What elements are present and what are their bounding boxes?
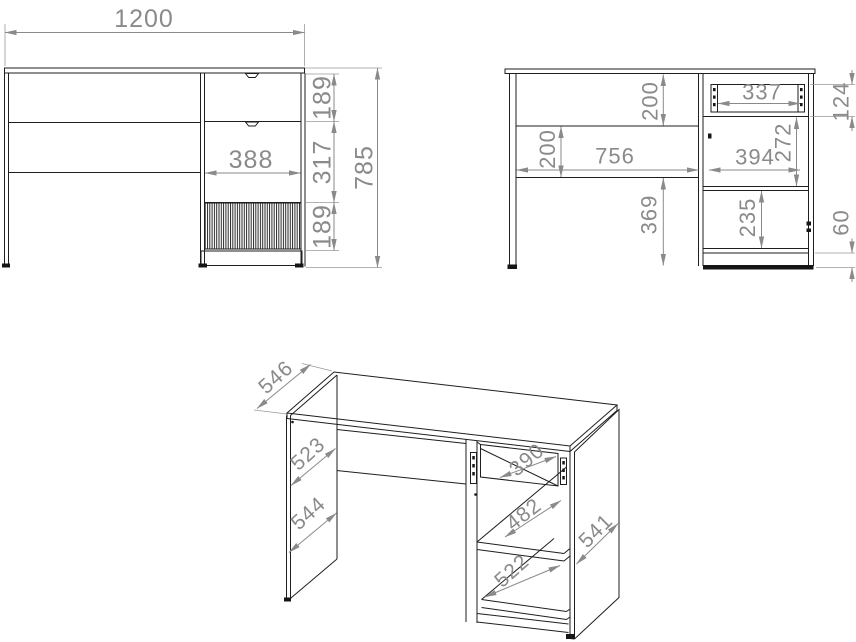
dim-drawer-front-width: 388 bbox=[229, 146, 274, 174]
dim-side-panel-upper-depth: 523 bbox=[286, 433, 330, 476]
perspective-view-furniture bbox=[284, 372, 619, 639]
dim-top-depth: 546 bbox=[254, 356, 298, 399]
dim-drawer-inner-width: 337 bbox=[742, 80, 782, 105]
dim-right-panel-depth: 541 bbox=[574, 509, 617, 552]
perspective-view: 546 523 544 390 482 522 541 bbox=[254, 356, 619, 639]
dim-middle-drawer-height: 317 bbox=[309, 140, 337, 185]
drawing-svg: 1200 388 189 317 189 785 bbox=[0, 0, 856, 642]
section-view: 200 200 756 369 337 394 272 235 bbox=[505, 69, 855, 282]
dim-drawer-depth: 390 bbox=[505, 439, 549, 481]
dim-top-drawer-height: 189 bbox=[309, 75, 337, 120]
fluted-drawer-front bbox=[205, 203, 302, 249]
dim-open-compartment-height: 272 bbox=[771, 123, 796, 163]
dim-drawer-box-height: 124 bbox=[829, 82, 854, 122]
drawer-handle-notch bbox=[246, 74, 259, 78]
dim-knee-space-width: 756 bbox=[595, 144, 635, 169]
front-view: 1200 388 189 317 189 785 bbox=[2, 5, 382, 268]
dim-front-width: 1200 bbox=[114, 5, 174, 33]
dim-apron-height: 200 bbox=[638, 81, 663, 121]
dim-back-rail-height: 200 bbox=[535, 129, 560, 169]
dim-bottom-drawer-height: 189 bbox=[309, 204, 337, 249]
dim-under-rail-height: 369 bbox=[637, 195, 662, 235]
dim-door-compartment-height: 235 bbox=[735, 198, 760, 238]
technical-drawing: 1200 388 189 317 189 785 bbox=[0, 0, 856, 642]
drawer-handle-notch bbox=[246, 122, 259, 126]
dim-overall-height: 785 bbox=[351, 145, 379, 190]
dim-cabinet-width: 394 bbox=[735, 145, 775, 170]
dim-side-panel-lower-depth: 544 bbox=[287, 492, 331, 535]
front-view-dimensions: 1200 388 189 317 189 785 bbox=[5, 5, 382, 268]
dim-middle-shelf-depth: 482 bbox=[502, 494, 546, 536]
dim-plinth-height: 60 bbox=[829, 209, 854, 235]
